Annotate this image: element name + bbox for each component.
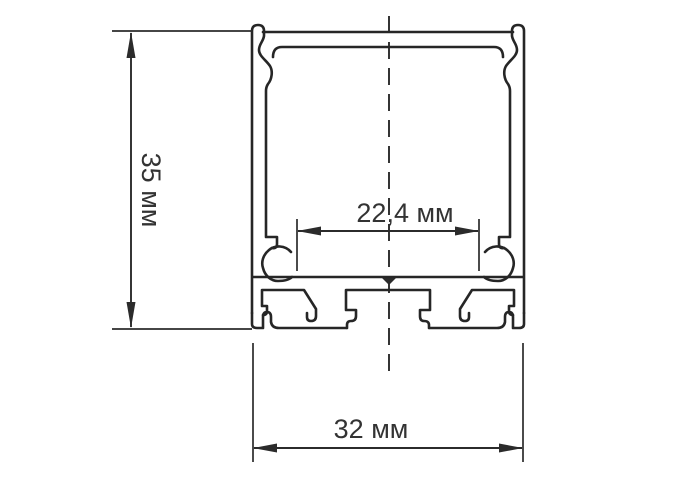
arrow-right-icon xyxy=(499,444,523,453)
arrow-up-icon xyxy=(127,32,136,58)
arrow-left-icon xyxy=(253,444,277,453)
inner-width-dimension-label: 22,4 мм xyxy=(356,198,453,228)
profile-inner-ceiling xyxy=(273,47,503,57)
outer-width-dimension: 32 мм xyxy=(253,343,523,462)
base-center-slot xyxy=(346,290,430,328)
arrow-down-icon xyxy=(127,302,136,328)
height-dimension: 35 мм xyxy=(112,31,252,329)
center-line xyxy=(381,16,397,374)
cross-section-svg: 35 мм 22,4 мм 32 мм xyxy=(0,0,682,494)
outer-width-dimension-label: 32 мм xyxy=(334,414,409,444)
profile-drawing: 35 мм 22,4 мм 32 мм xyxy=(0,0,682,494)
inner-width-dimension: 22,4 мм xyxy=(297,198,479,271)
arrow-right-icon xyxy=(455,227,479,236)
arrow-left-icon xyxy=(297,227,321,236)
height-dimension-label: 35 мм xyxy=(136,153,166,228)
